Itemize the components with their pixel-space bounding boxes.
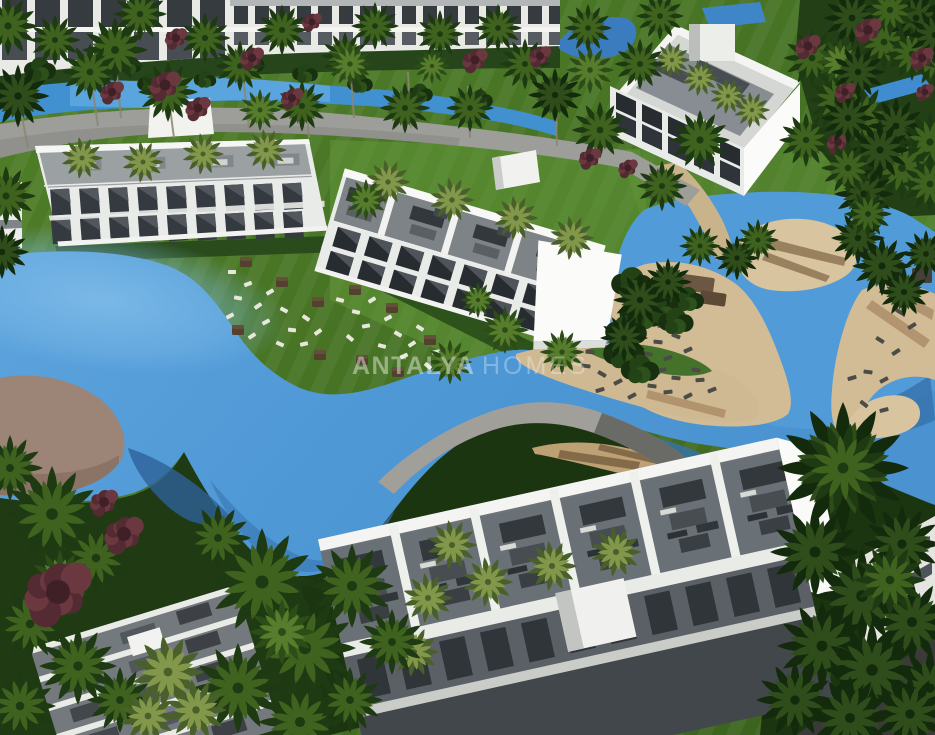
svg-text:HOMES: HOMES <box>482 352 589 380</box>
svg-text:ANTALYA: ANTALYA <box>352 352 476 380</box>
